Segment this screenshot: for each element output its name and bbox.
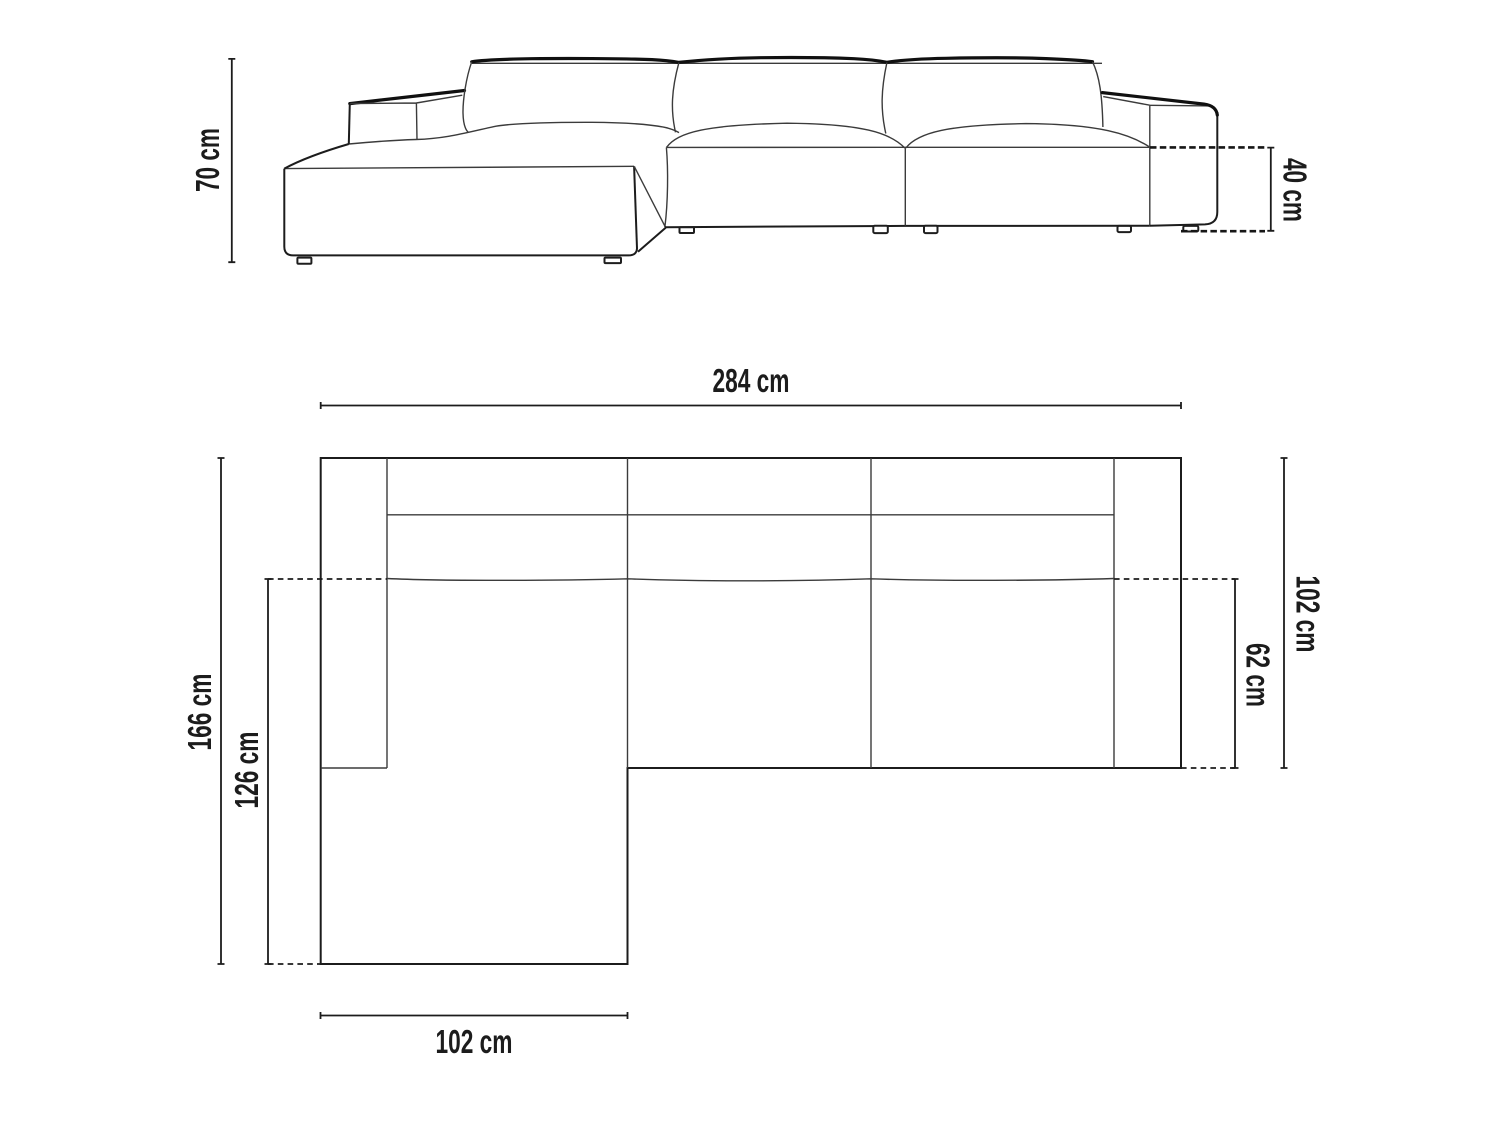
svg-text:40 cm: 40 cm xyxy=(1277,158,1314,222)
svg-text:166 cm: 166 cm xyxy=(181,674,218,751)
svg-text:126 cm: 126 cm xyxy=(228,732,265,809)
svg-text:102 cm: 102 cm xyxy=(436,1023,513,1060)
svg-text:70 cm: 70 cm xyxy=(189,128,226,192)
svg-text:102 cm: 102 cm xyxy=(1290,576,1327,653)
svg-text:62 cm: 62 cm xyxy=(1240,643,1277,707)
svg-text:284 cm: 284 cm xyxy=(713,362,790,399)
